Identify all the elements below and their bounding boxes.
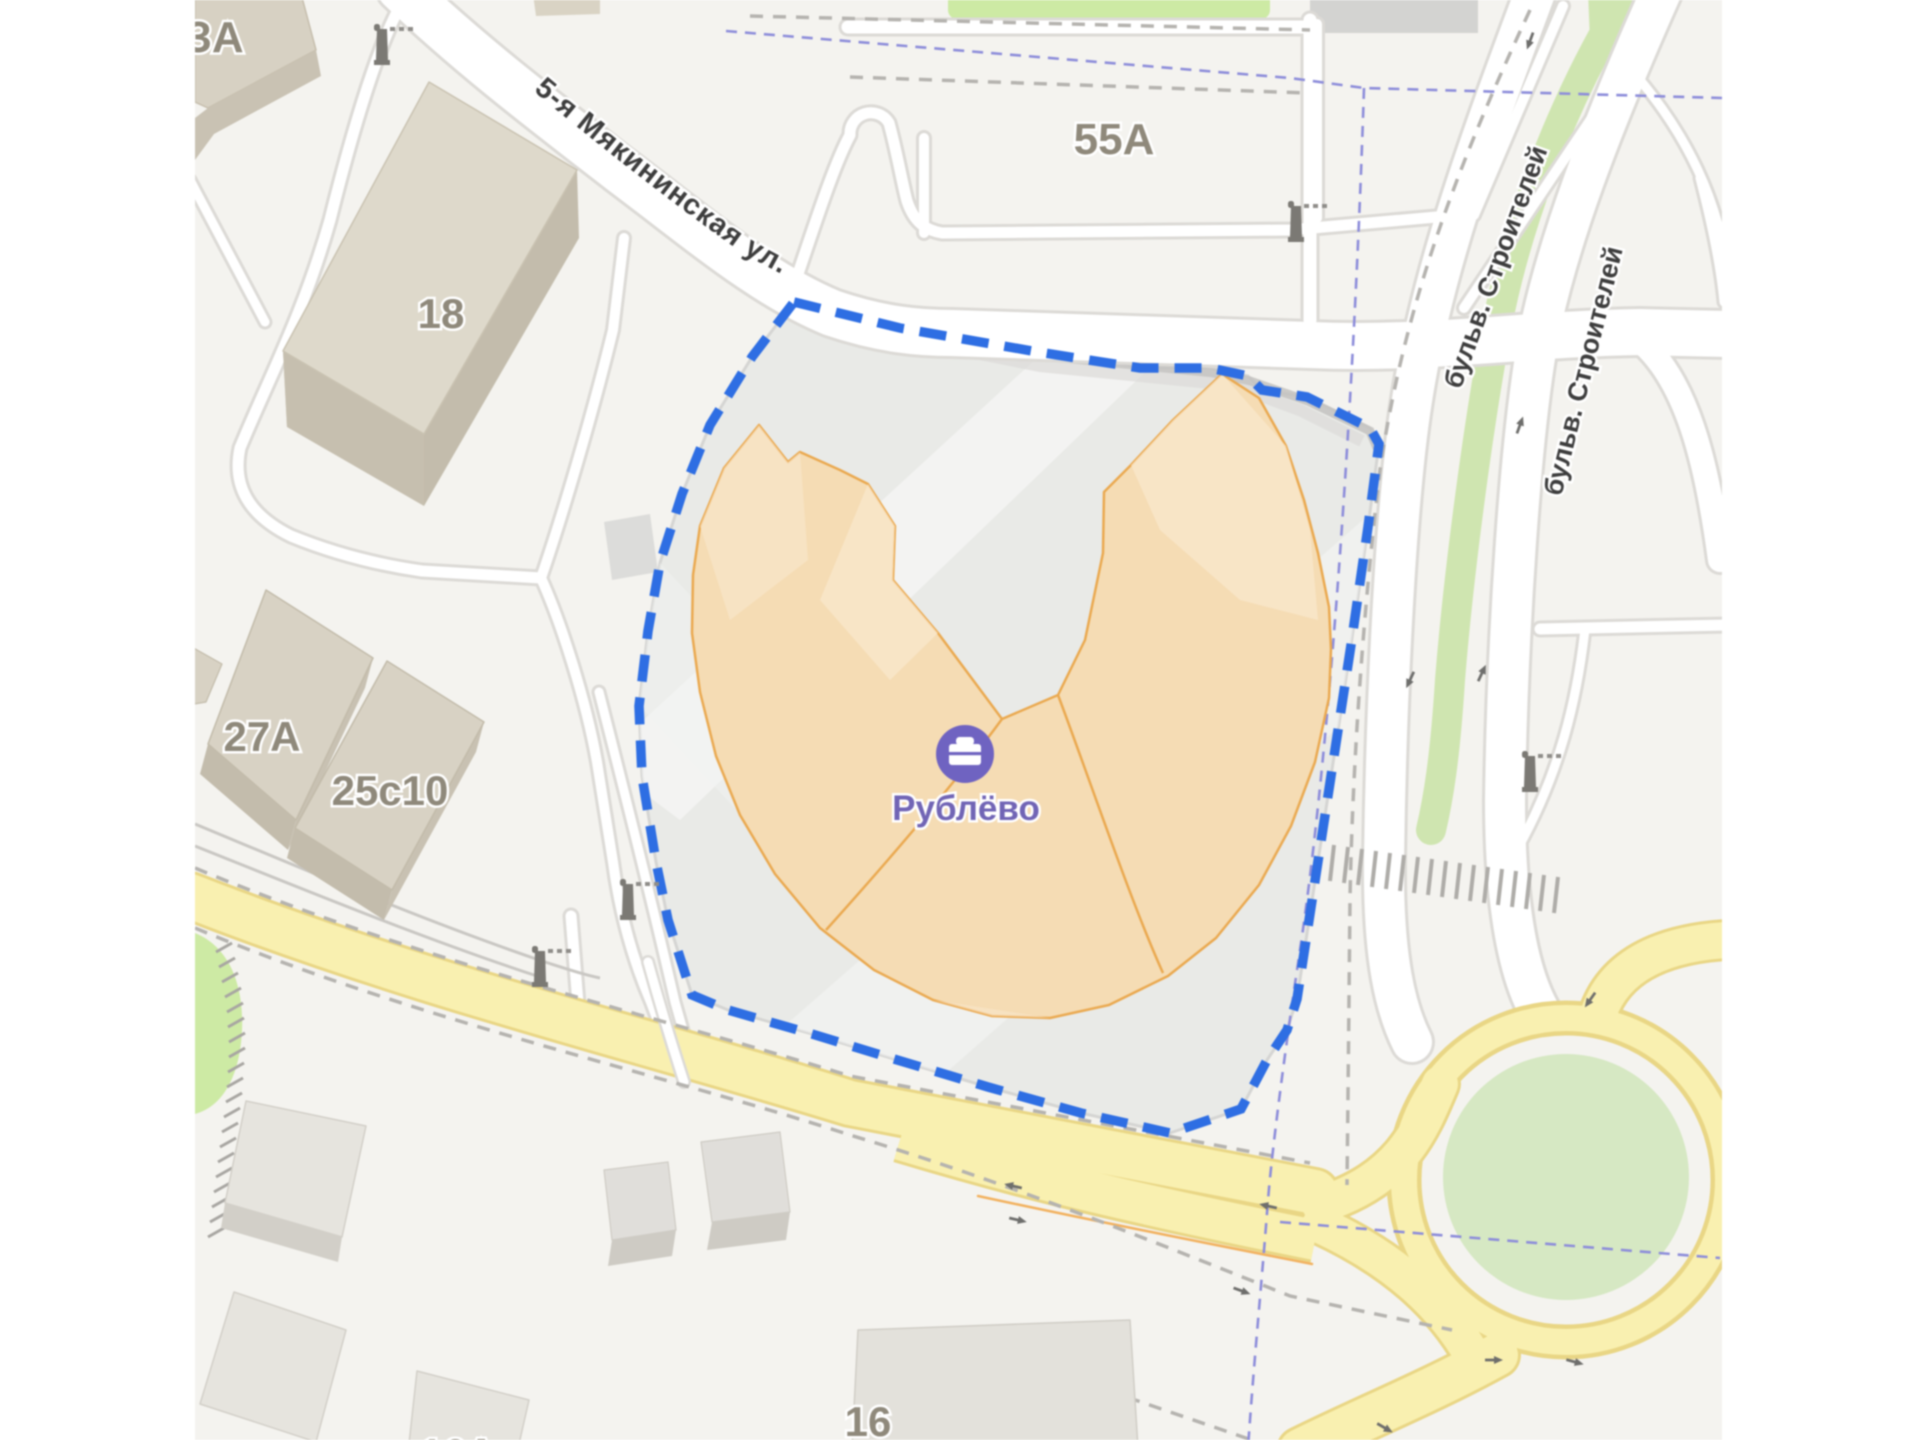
svg-text:Рублёво: Рублёво: [892, 789, 1040, 828]
svg-text:18: 18: [418, 290, 465, 337]
svg-text:25с10: 25с10: [332, 767, 449, 814]
svg-text:16: 16: [845, 1398, 892, 1440]
svg-text:27А: 27А: [223, 713, 300, 760]
svg-text:16А: 16А: [419, 1430, 496, 1440]
svg-text:55А: 55А: [1074, 115, 1155, 164]
